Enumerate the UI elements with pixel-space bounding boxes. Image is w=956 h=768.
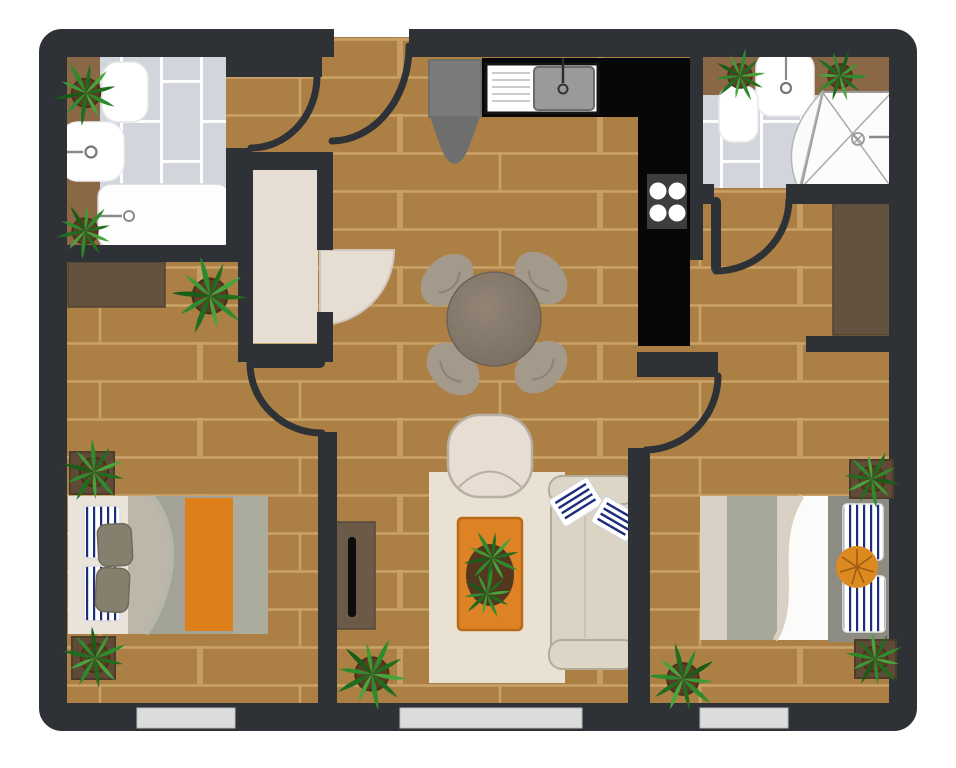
front-door-gap-outside: [334, 26, 409, 37]
wall: [637, 352, 718, 377]
wall: [226, 54, 252, 77]
floor-plan-drawing: [0, 0, 956, 768]
wall: [628, 448, 650, 707]
wall: [238, 152, 253, 362]
wall: [317, 152, 333, 250]
entry-mat: [252, 167, 318, 343]
window-bedroom-1: [137, 708, 235, 728]
bathroom-1-door-leaf: [250, 56, 322, 77]
sofa-armrest-bottom: [549, 640, 636, 669]
toilet: [719, 86, 758, 142]
basin-faucet-knob: [86, 147, 97, 158]
bed-runner: [185, 498, 233, 631]
burner: [650, 183, 667, 200]
wall: [318, 432, 337, 707]
tv-screen: [348, 537, 356, 617]
window-bedroom-2: [700, 708, 788, 728]
wardrobe: [833, 200, 893, 335]
wall: [690, 184, 714, 204]
sink-faucet-knob: [559, 85, 568, 94]
toilet: [102, 62, 148, 122]
wall: [806, 336, 893, 352]
wall: [786, 184, 893, 204]
basin-faucet-knob: [781, 83, 791, 93]
cushion: [95, 567, 130, 613]
window-living: [400, 708, 582, 728]
wall: [690, 54, 703, 260]
floor-plan: Apartment floor plan — top-down illustra…: [0, 0, 956, 768]
bathtub-faucet-knob: [124, 211, 134, 221]
burner: [650, 205, 667, 222]
stove: [647, 174, 687, 229]
front-door-threshold: [334, 37, 409, 60]
burner: [669, 183, 686, 200]
bed-panel: [727, 496, 777, 640]
dining-table: [447, 272, 541, 366]
bed-edge-strip: [233, 496, 268, 634]
desk: [68, 262, 165, 307]
burner: [669, 205, 686, 222]
cushion: [97, 523, 133, 567]
refrigerator: [429, 60, 481, 117]
